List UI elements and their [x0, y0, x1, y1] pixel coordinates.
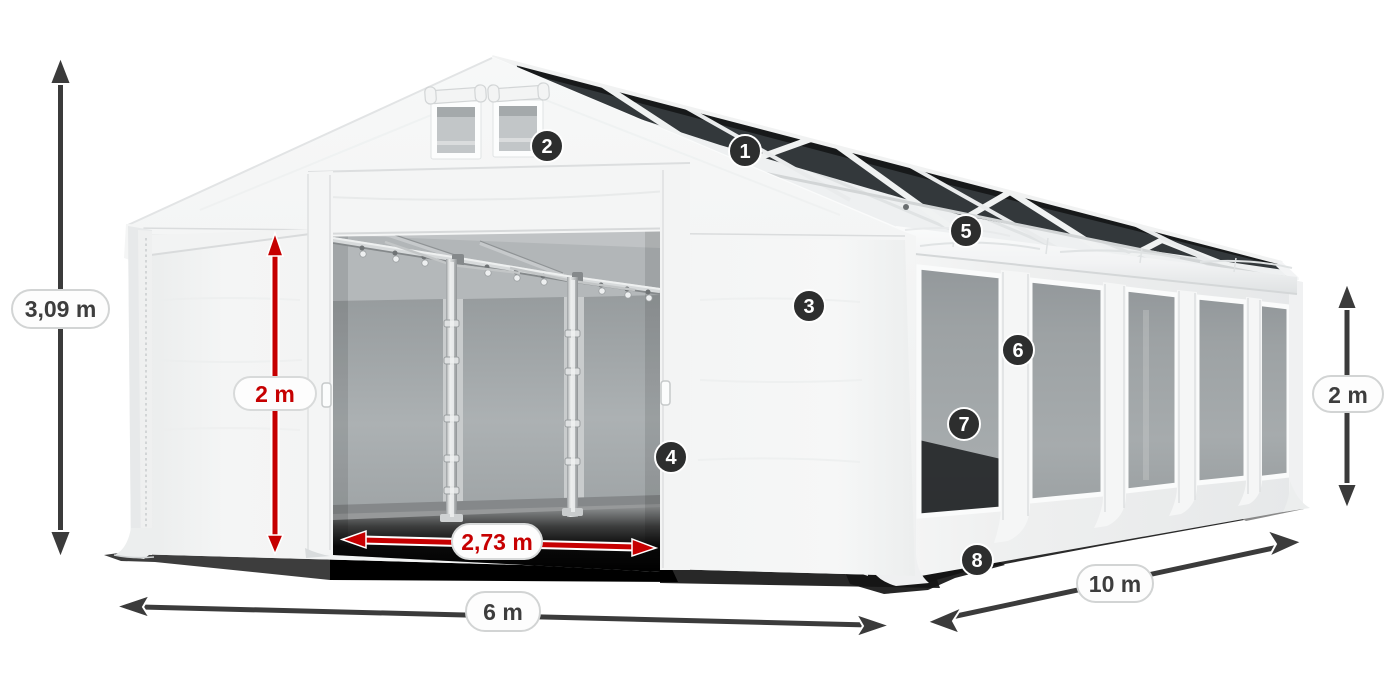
svg-text:1: 1 [739, 141, 750, 163]
svg-text:6: 6 [1012, 340, 1023, 362]
svg-text:10 m: 10 m [1089, 571, 1141, 597]
svg-text:3,09 m: 3,09 m [25, 296, 97, 322]
svg-text:2 m: 2 m [1328, 382, 1368, 408]
svg-text:2,73 m: 2,73 m [461, 529, 533, 555]
svg-text:2: 2 [541, 136, 552, 158]
svg-text:2 m: 2 m [255, 381, 295, 407]
svg-text:3: 3 [803, 296, 814, 318]
svg-text:7: 7 [958, 414, 969, 436]
svg-text:6 m: 6 m [483, 599, 523, 625]
svg-text:4: 4 [665, 447, 677, 469]
svg-text:5: 5 [960, 221, 971, 243]
svg-text:8: 8 [971, 550, 982, 572]
